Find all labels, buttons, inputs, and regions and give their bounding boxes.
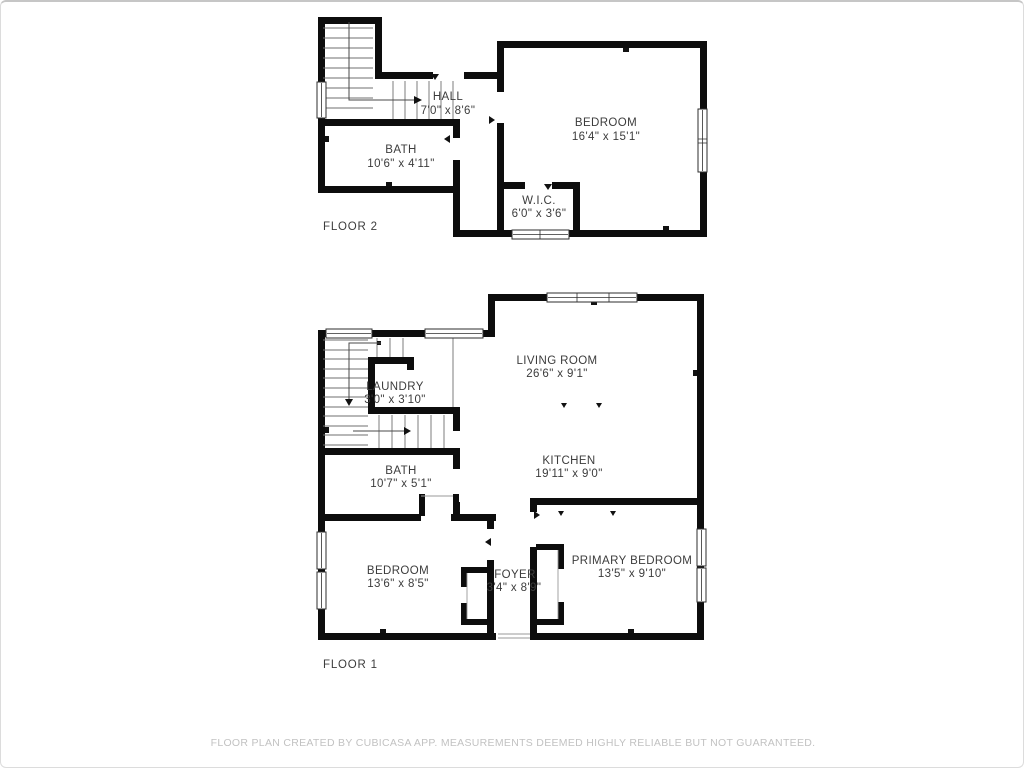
- stair-direction-arrow-icon: [345, 399, 353, 406]
- room-dims-laundry: 3'0" x 3'10": [364, 394, 425, 406]
- opening-marker-icon: [561, 403, 567, 408]
- room-dims-hall: 7'0" x 8'6": [421, 105, 476, 117]
- window: [697, 529, 706, 566]
- window: [317, 532, 326, 569]
- floor1-plan: LIVING ROOM 26'6" x 9'1" LAUNDRY 3'0" x …: [317, 293, 706, 671]
- door-swing-icon: [444, 135, 450, 143]
- entry-door: [498, 634, 530, 638]
- room-label-bedroom-f1: BEDROOM: [367, 565, 429, 577]
- floor-plan-canvas: HALL 7'0" x 8'6" BATH 10'6" x 4'11" BEDR…: [1, 2, 1024, 768]
- floor1-room-labels: LIVING ROOM 26'6" x 9'1" LAUNDRY 3'0" x …: [364, 355, 692, 594]
- stair-direction-arrow-icon: [404, 427, 411, 435]
- room-label-laundry: LAUNDRY: [366, 381, 424, 393]
- room-label-bedroom-f2: BEDROOM: [575, 117, 637, 129]
- window: [326, 329, 372, 338]
- window: [512, 230, 569, 239]
- opening-marker-icon: [596, 403, 602, 408]
- floor2-plan: HALL 7'0" x 8'6" BATH 10'6" x 4'11" BEDR…: [317, 17, 707, 239]
- floor2-walls: [318, 17, 707, 237]
- room-label-kitchen: KITCHEN: [542, 455, 595, 467]
- opening-marker-icon: [558, 511, 564, 516]
- door-swing-icon: [485, 538, 491, 546]
- room-dims-foyer: 3'4" x 8'9": [487, 582, 542, 594]
- stair-treads: [323, 28, 373, 108]
- window: [317, 572, 326, 609]
- room-dims-bedroom-f2: 16'4" x 15'1": [572, 131, 640, 143]
- window: [317, 82, 326, 118]
- door-swing-icon: [534, 511, 540, 519]
- room-label-primary-bedroom: PRIMARY BEDROOM: [572, 555, 693, 567]
- room-dims-bath-f1: 10'7" x 5'1": [370, 478, 431, 490]
- floor2-label: FLOOR 2: [323, 221, 378, 233]
- disclaimer-text: FLOOR PLAN CREATED BY CUBICASA APP. MEAS…: [211, 737, 816, 749]
- room-dims-kitchen: 19'11" x 9'0": [535, 468, 602, 480]
- stair-treads: [323, 340, 368, 445]
- room-label-hall: HALL: [433, 91, 464, 103]
- window: [697, 568, 706, 602]
- floor1-label: FLOOR 1: [323, 659, 378, 671]
- room-dims-bath-f2: 10'6" x 4'11": [367, 158, 434, 170]
- room-dims-wic: 6'0" x 3'6": [512, 208, 567, 220]
- room-label-foyer: FOYER: [494, 569, 536, 581]
- door-swing-icon: [544, 184, 552, 190]
- floor-plan-image: HALL 7'0" x 8'6" BATH 10'6" x 4'11" BEDR…: [0, 0, 1024, 768]
- window: [425, 329, 483, 338]
- stair-direction-arrow-icon: [414, 96, 422, 104]
- room-dims-bedroom-f1: 13'6" x 8'5": [367, 578, 428, 590]
- room-label-living-room: LIVING ROOM: [516, 355, 597, 367]
- room-label-wic: W.I.C.: [522, 195, 556, 207]
- room-label-bath-f1: BATH: [385, 465, 416, 477]
- room-label-bath-f2: BATH: [385, 144, 416, 156]
- door-swing-icon: [489, 116, 495, 124]
- room-dims-living-room: 26'6" x 9'1": [526, 368, 587, 380]
- window: [698, 109, 707, 172]
- opening-marker-icon: [610, 511, 616, 516]
- window: [547, 293, 637, 302]
- room-dims-primary-bedroom: 13'5" x 9'10": [598, 568, 666, 580]
